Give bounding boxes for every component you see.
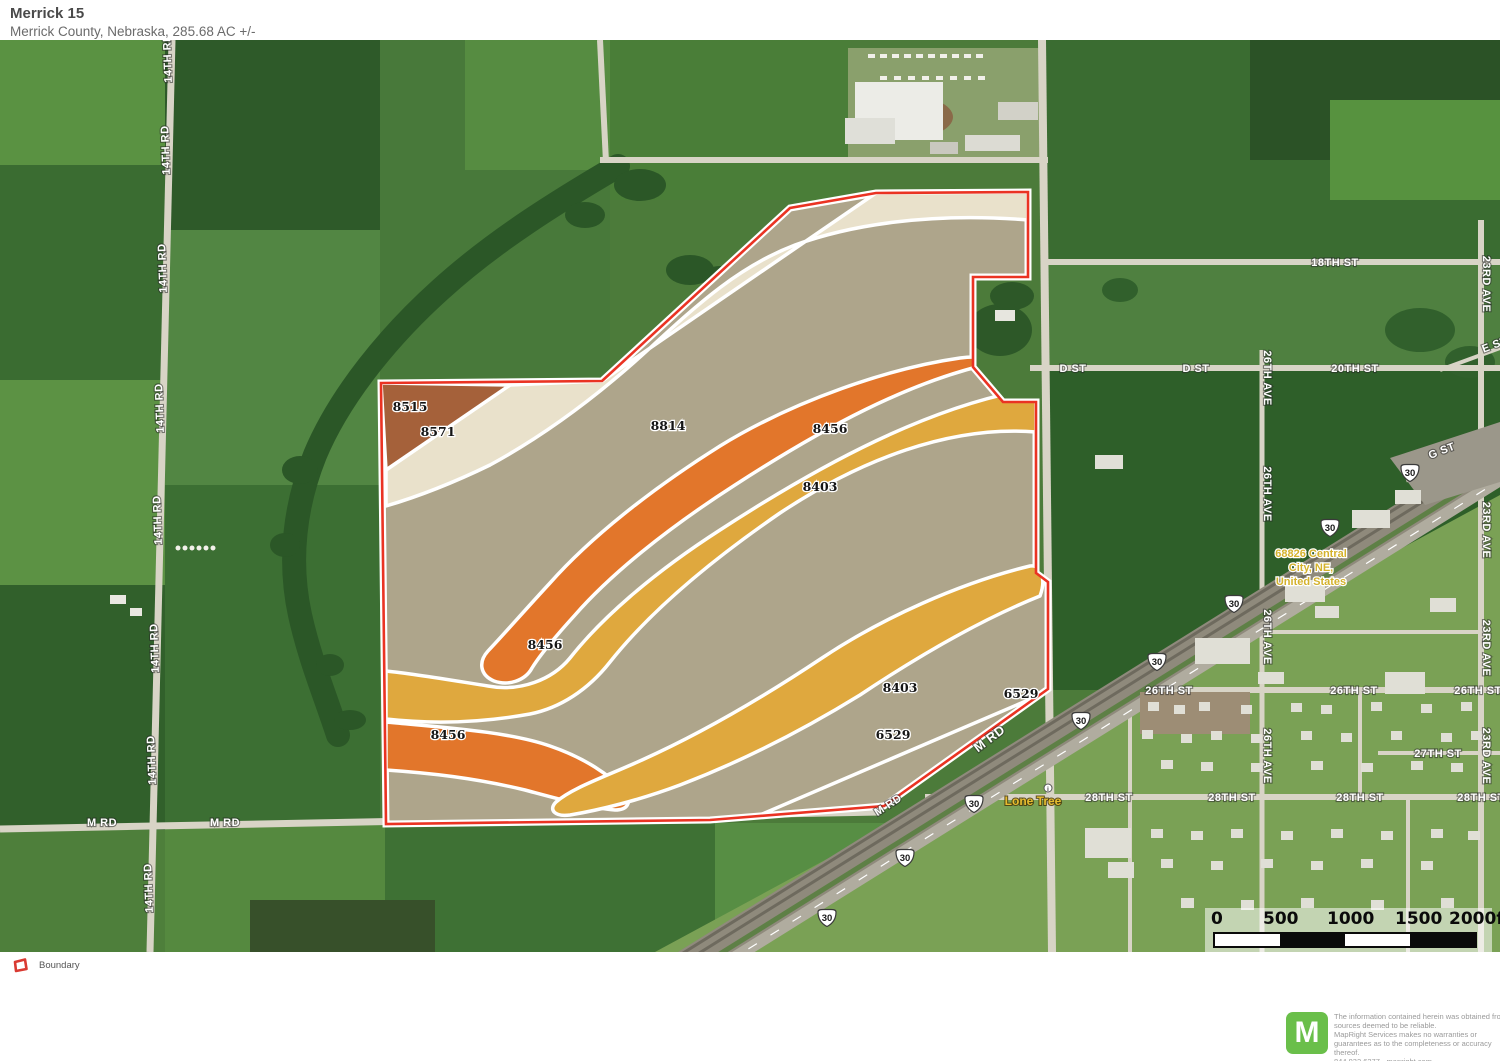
town-label: Lone Tree — [1005, 794, 1062, 808]
scale-tick: 500 — [1263, 909, 1299, 929]
svg-text:30: 30 — [1325, 523, 1336, 534]
road-label: 23RD AVE — [1480, 728, 1492, 785]
boundary-icon — [12, 958, 29, 973]
legend: Boundary — [12, 958, 80, 973]
soil-label: 8571 — [421, 424, 456, 439]
scale-segment — [1410, 934, 1475, 946]
road-label: 14TH RD — [156, 243, 170, 293]
road-label: 28TH ST — [1085, 792, 1133, 804]
scale-segment — [1215, 934, 1280, 946]
road-label: 27TH ST — [1414, 748, 1462, 760]
address-label: 68826 Central — [1275, 548, 1347, 560]
road-label: 14TH RD — [148, 623, 162, 673]
scale-bar-segments — [1213, 932, 1477, 948]
mapright-logo: M — [1286, 1012, 1328, 1054]
road-label: 14TH RD — [161, 40, 175, 83]
road-label: 14TH RD — [151, 495, 165, 545]
svg-text:30: 30 — [1076, 716, 1087, 727]
road-label: 20TH ST — [1331, 363, 1379, 375]
road-label: 14TH RD — [153, 383, 167, 433]
scale-bar: 0 500 1000 1500 2000ft — [1205, 908, 1492, 952]
soil-label: 8814 — [651, 418, 686, 433]
legend-item-label: Boundary — [39, 960, 80, 971]
road-label: 28TH ST — [1336, 792, 1384, 804]
scale-tick: 2000ft — [1449, 909, 1500, 929]
road-label: 26TH ST — [1145, 685, 1193, 697]
road-label: D ST — [1059, 363, 1086, 375]
svg-text:30: 30 — [1229, 599, 1240, 610]
road-label: 23RD AVE — [1480, 502, 1492, 559]
road-label: 26TH ST — [1330, 685, 1378, 697]
svg-text:30: 30 — [1405, 468, 1416, 479]
brand-block: M The information contained herein was o… — [1286, 1012, 1500, 1061]
road-label: 14TH RD — [145, 735, 159, 785]
road-label: 14TH RD — [159, 125, 173, 175]
soil-label: 8456 — [431, 727, 466, 742]
svg-text:30: 30 — [1152, 657, 1163, 668]
scale-tick: 1500 — [1395, 909, 1442, 929]
soil-label: 8403 — [883, 680, 918, 695]
scale-tick: 0 — [1211, 909, 1223, 929]
svg-text:30: 30 — [969, 799, 980, 810]
page-subtitle: Merrick County, Nebraska, 285.68 AC +/- — [10, 23, 255, 40]
scale-tick: 1000 — [1327, 909, 1374, 929]
soil-label: 8456 — [528, 637, 563, 652]
road-label: 18TH ST — [1311, 257, 1359, 269]
road-label: 23RD AVE — [1480, 620, 1492, 677]
scale-segment — [1280, 934, 1345, 946]
svg-text:30: 30 — [822, 913, 833, 924]
svg-text:30: 30 — [900, 853, 911, 864]
map-area: i 14TH RD14TH RD14TH RD14TH RD14TH RD14T… — [0, 40, 1500, 952]
road-label: M RD — [87, 817, 117, 829]
map-header: Merrick 15 Merrick County, Nebraska, 285… — [10, 4, 255, 40]
road-label: 26TH AVE — [1261, 728, 1273, 783]
address-label: United States — [1276, 576, 1346, 588]
address-label: City, NE, — [1289, 562, 1333, 574]
road-label: M RD — [210, 817, 240, 829]
soil-label: 6529 — [876, 727, 911, 742]
disclaimer-text: The information contained herein was obt… — [1334, 1012, 1500, 1061]
road-label: 26TH AVE — [1261, 466, 1273, 521]
road-label: 23RD AVE — [1480, 256, 1492, 313]
road-label: 26TH AVE — [1261, 609, 1273, 664]
road-label: 14TH RD — [142, 863, 156, 913]
scale-segment — [1345, 934, 1410, 946]
soil-label: 8456 — [813, 421, 848, 436]
soil-label: 8515 — [393, 399, 428, 414]
page: Merrick 15 Merrick County, Nebraska, 285… — [0, 0, 1500, 1061]
soil-label: 8403 — [803, 479, 838, 494]
soil-label: 6529 — [1004, 686, 1039, 701]
page-title: Merrick 15 — [10, 4, 255, 23]
farmstead — [845, 48, 1043, 163]
aerial-map: i 14TH RD14TH RD14TH RD14TH RD14TH RD14T… — [0, 40, 1500, 952]
scale-bar-numbers: 0 500 1000 1500 2000ft — [1205, 908, 1492, 930]
road-label: D ST — [1182, 363, 1209, 375]
road-label: 26TH ST — [1454, 685, 1500, 697]
road-label: 28TH ST — [1457, 792, 1500, 804]
road-label: 26TH AVE — [1261, 350, 1273, 405]
road-label: 28TH ST — [1208, 792, 1256, 804]
